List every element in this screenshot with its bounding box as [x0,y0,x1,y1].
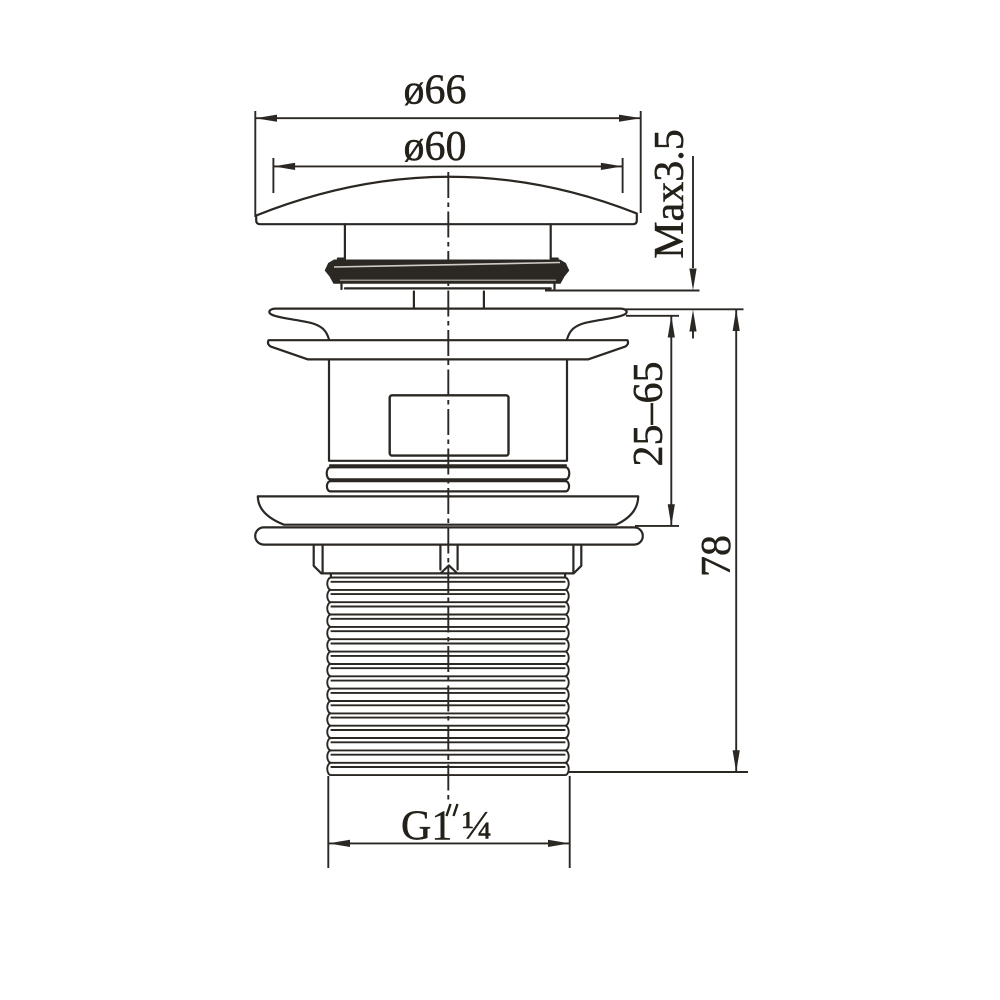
svg-text:ø66: ø66 [404,68,467,114]
svg-text:G1: G1 [401,804,452,850]
svg-text:25–65: 25–65 [626,362,672,467]
svg-text:¼: ¼ [462,803,492,848]
svg-text:78: 78 [694,535,740,577]
svg-text:ø60: ø60 [404,124,467,170]
svg-text:Max3.5: Max3.5 [647,129,693,259]
